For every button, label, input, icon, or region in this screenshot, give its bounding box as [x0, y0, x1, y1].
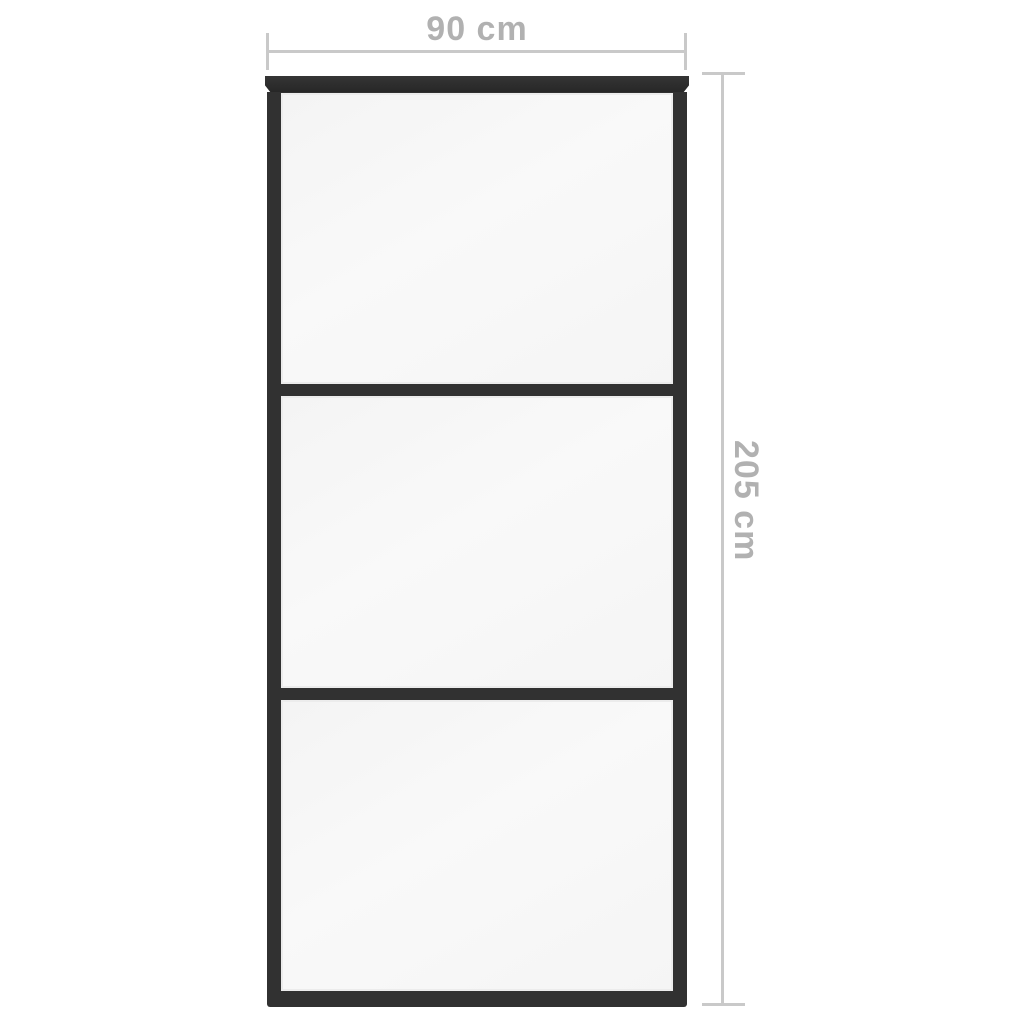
door-top-rail [265, 76, 689, 93]
width-dimension-line [267, 50, 687, 53]
glass-panel-bottom [281, 700, 673, 991]
height-dimension-label: 205 cm [729, 440, 763, 561]
door-frame [267, 92, 687, 1007]
width-dimension-label: 90 cm [267, 12, 687, 46]
product-dimension-diagram: 90 cm 205 cm [0, 0, 1024, 1024]
glass-panel-top [281, 93, 673, 384]
height-dimension-tick-bottom [702, 1003, 745, 1006]
width-dimension-tick-right [684, 33, 687, 70]
height-dimension-tick-top [702, 72, 745, 75]
glass-panel-middle [281, 396, 673, 687]
sliding-door [267, 76, 687, 1007]
width-dimension-tick-left [266, 33, 269, 70]
height-dimension-line [721, 73, 724, 1006]
